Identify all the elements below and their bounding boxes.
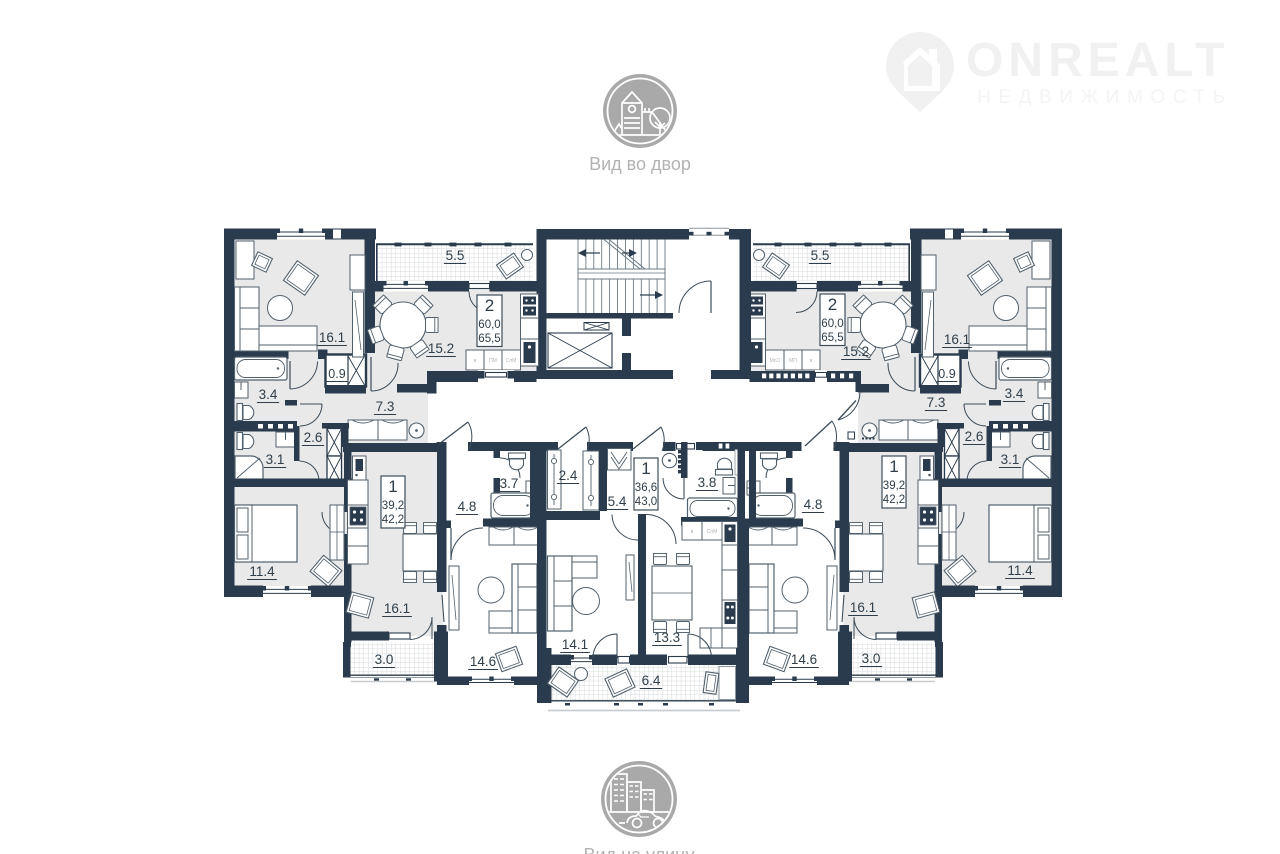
- svg-text:2.4: 2.4: [559, 468, 578, 483]
- svg-text:39,2: 39,2: [883, 480, 905, 492]
- svg-text:3.4: 3.4: [1005, 386, 1024, 401]
- svg-text:2: 2: [485, 296, 494, 315]
- svg-text:3.4: 3.4: [259, 387, 278, 402]
- svg-text:0.9: 0.9: [938, 367, 955, 381]
- svg-text:65,5: 65,5: [478, 333, 500, 345]
- svg-text:6.4: 6.4: [642, 673, 661, 688]
- svg-text:60,0: 60,0: [478, 319, 500, 331]
- svg-text:5.5: 5.5: [446, 248, 465, 263]
- svg-text:16.1: 16.1: [850, 600, 876, 615]
- svg-text:3.0: 3.0: [862, 651, 881, 666]
- svg-text:14.6: 14.6: [470, 654, 496, 669]
- svg-text:СпМ: СпМ: [506, 358, 516, 364]
- svg-text:4.8: 4.8: [458, 499, 477, 514]
- svg-text:43,0: 43,0: [635, 496, 657, 508]
- svg-text:15.2: 15.2: [843, 344, 869, 359]
- svg-text:7.3: 7.3: [927, 395, 946, 410]
- svg-text:НЕДВИЖИМОСТЬ: НЕДВИЖИМОСТЬ: [977, 87, 1233, 108]
- svg-text:3.7: 3.7: [500, 476, 519, 491]
- svg-text:60,0: 60,0: [821, 318, 843, 330]
- svg-text:14.6: 14.6: [791, 652, 817, 667]
- svg-text:16.1: 16.1: [319, 330, 345, 345]
- svg-text:3.0: 3.0: [375, 652, 394, 667]
- svg-text:Вид во двор: Вид во двор: [589, 154, 691, 174]
- svg-text:14.1: 14.1: [562, 637, 588, 652]
- svg-text:11.4: 11.4: [249, 564, 275, 579]
- svg-text:5.4: 5.4: [608, 494, 627, 509]
- svg-text:15.2: 15.2: [428, 341, 454, 356]
- svg-text:1: 1: [889, 457, 898, 476]
- svg-text:16.1: 16.1: [944, 332, 970, 347]
- svg-text:36,6: 36,6: [635, 482, 657, 494]
- svg-text:3.1: 3.1: [266, 452, 285, 467]
- svg-text:1: 1: [641, 459, 650, 478]
- svg-text:в: в: [691, 529, 694, 535]
- svg-text:65,5: 65,5: [821, 332, 843, 344]
- svg-text:3.8: 3.8: [698, 475, 717, 490]
- svg-text:5.5: 5.5: [811, 248, 830, 263]
- svg-text:42,2: 42,2: [883, 494, 905, 506]
- svg-text:4.8: 4.8: [804, 497, 823, 512]
- svg-text:в: в: [474, 358, 477, 364]
- svg-text:7.3: 7.3: [376, 399, 395, 414]
- svg-text:СпМ: СпМ: [707, 529, 717, 535]
- svg-text:0.9: 0.9: [328, 367, 345, 381]
- svg-text:ПМ: ПМ: [489, 358, 497, 364]
- svg-text:Вид на улицу: Вид на улицу: [584, 845, 695, 854]
- svg-text:3.1: 3.1: [1001, 452, 1020, 467]
- svg-text:1: 1: [388, 477, 397, 496]
- svg-text:ONREALT: ONREALT: [966, 34, 1229, 87]
- svg-text:2.6: 2.6: [304, 430, 323, 445]
- svg-text:42,2: 42,2: [382, 514, 404, 526]
- svg-text:13.3: 13.3: [654, 630, 680, 645]
- svg-text:2.6: 2.6: [965, 429, 984, 444]
- svg-text:11.4: 11.4: [1007, 563, 1033, 578]
- svg-text:2: 2: [828, 295, 837, 314]
- svg-text:39,2: 39,2: [382, 500, 404, 512]
- svg-text:16.1: 16.1: [384, 601, 410, 616]
